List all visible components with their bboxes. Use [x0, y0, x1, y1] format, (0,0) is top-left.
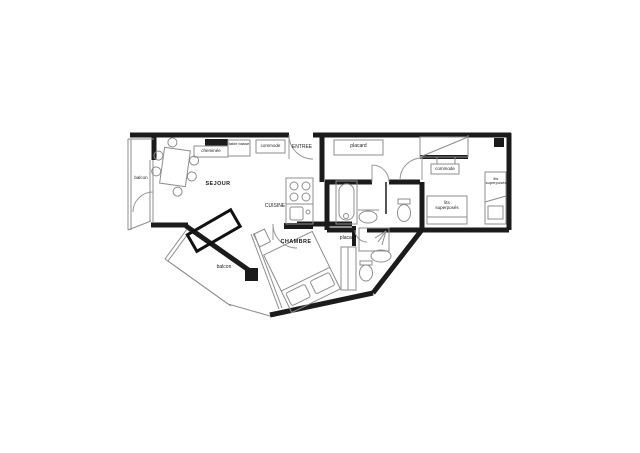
bathtub	[336, 181, 357, 224]
room-label-balcon-bottom: balcon	[206, 265, 242, 271]
furniture-label-commode-2: commode	[431, 166, 459, 171]
furniture-label-lits-superposes-2: lits superposés	[484, 177, 508, 186]
placard-chambre-furniture	[341, 247, 356, 290]
pillow	[488, 206, 503, 219]
room-label-chambre: CHAMBRE	[276, 239, 316, 245]
kitchen-unit	[286, 178, 313, 224]
fireplace-icon	[205, 139, 228, 146]
stove-burner	[302, 193, 310, 201]
shower-room-sink	[371, 250, 391, 262]
floorplan-canvas: balcon cheminée table basse commode ENTR…	[0, 0, 640, 453]
room-label-sejour: SEJOUR	[200, 181, 236, 187]
furniture-label-table-basse: table basse	[228, 142, 250, 146]
room-label-balcon-left: balcon	[128, 175, 154, 180]
shower-room-toilet	[360, 261, 373, 281]
stove-burner	[302, 182, 310, 190]
wall-corner-block	[245, 268, 258, 281]
room-label-entree: ENTREE	[286, 145, 318, 151]
furniture-label-placard-chambre: placard	[333, 236, 363, 242]
dining-table	[149, 136, 201, 199]
kitchen-sink	[290, 207, 303, 220]
furniture-label-commode: commode	[256, 143, 285, 148]
stove-burner	[290, 193, 298, 201]
wall-pillar	[494, 138, 504, 147]
room-label-cuisine: CUISINE	[261, 204, 289, 210]
closet	[420, 137, 468, 157]
furniture-label-cheminee: cheminée	[194, 148, 228, 153]
floorplan-drawing	[0, 0, 640, 453]
furniture-label-lits-superposes-1: lits superposés	[434, 200, 460, 210]
stove-burner	[290, 182, 298, 190]
bathroom-sink	[358, 210, 379, 223]
furniture-label-placard-hall: placard	[334, 144, 383, 150]
bath-door-arc	[372, 165, 389, 182]
toilet	[398, 199, 411, 222]
bedroom-door-arc	[400, 158, 422, 180]
